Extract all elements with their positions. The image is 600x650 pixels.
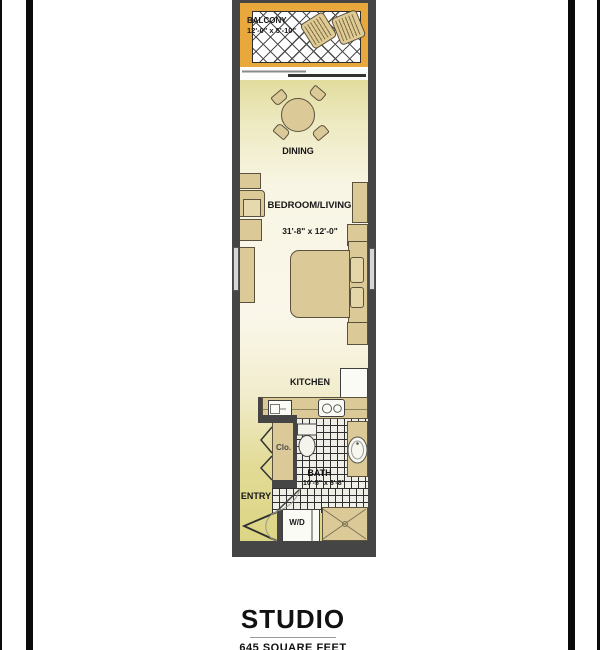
stove-burner <box>334 405 342 413</box>
page-border-left-inner <box>26 0 33 650</box>
bedroom-dims: 31'-8" x 12'-0" <box>270 226 350 237</box>
sink-faucet-dot <box>356 442 359 445</box>
title-block: STUDIO 645 SQUARE FEET <box>0 604 586 650</box>
stove-burner <box>323 404 332 413</box>
plan-square-feet: 645 SQUARE FEET <box>0 642 586 650</box>
page-border-right-inner <box>568 0 575 650</box>
bath-dims: 10'-5" x 6'-8" <box>294 480 354 489</box>
bath-label: BATH <box>292 468 347 479</box>
entry-door-icon <box>244 512 277 541</box>
page-border-left-outer <box>0 0 2 650</box>
bifold-door-icon <box>261 427 272 453</box>
toilet-tank <box>298 424 317 435</box>
floorplan-page: BALCONY 12'-0" x 5'-10" <box>0 0 600 650</box>
bifold-door-icon <box>261 456 272 480</box>
toilet-icon <box>299 436 315 457</box>
entry-label: ENTRY <box>237 491 275 502</box>
sink-basin <box>271 405 280 414</box>
bedroom-label: BEDROOM/LIVING <box>262 200 357 212</box>
title-underline <box>250 637 336 638</box>
closet-label: Clo. <box>272 443 295 453</box>
floorplan: BALCONY 12'-0" x 5'-10" <box>232 0 376 557</box>
bath-door-leaf <box>277 489 300 511</box>
washer-dryer-label: W/D <box>282 518 312 528</box>
kitchen-label: KITCHEN <box>280 377 340 388</box>
plan-title: STUDIO <box>0 604 586 635</box>
dining-label: DINING <box>268 146 328 157</box>
